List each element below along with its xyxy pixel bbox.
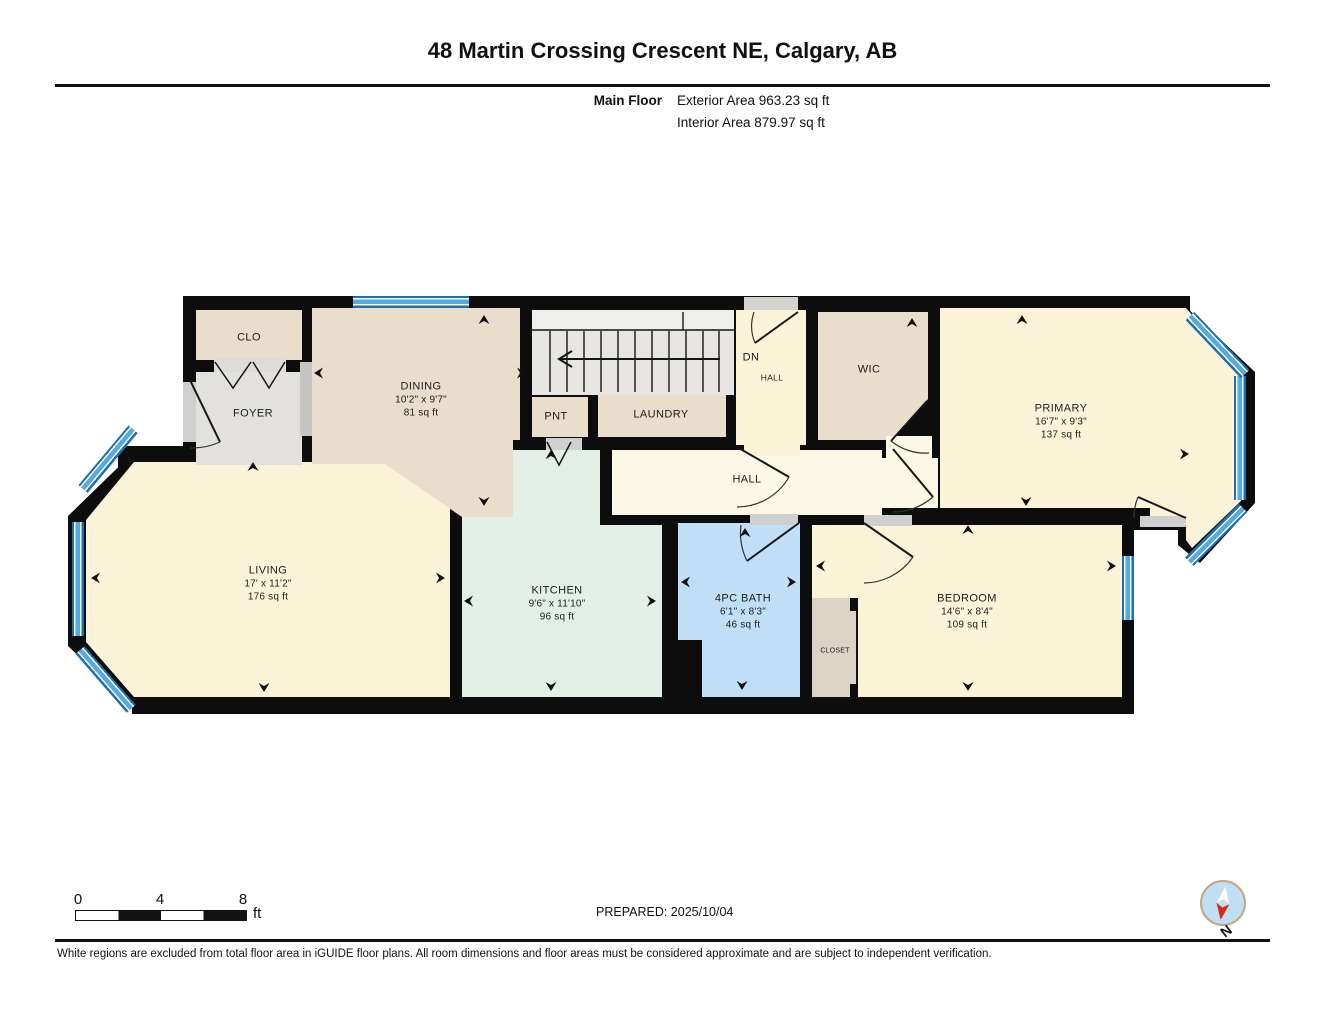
clo-door-sill: [214, 358, 286, 372]
primary-patio-sill: [1140, 516, 1186, 527]
stairs-landing: [532, 310, 734, 330]
pnt-door-sill: [546, 438, 582, 450]
prepared-date: PREPARED: 2025/10/04: [596, 905, 733, 919]
clo-label: CLO: [237, 332, 261, 345]
floor-label: Main Floor: [520, 93, 662, 108]
exterior-area: Exterior Area 963.23 sq ft: [677, 93, 829, 108]
wic-doorway: [886, 436, 932, 460]
living-label: LIVING17' x 11'2"176 sq ft: [244, 565, 291, 604]
bedroom-door-sill: [864, 515, 912, 526]
closet-door-post-bottom: [850, 684, 858, 697]
compass-icon: [1200, 880, 1246, 926]
scale-unit: ft: [253, 905, 261, 922]
foyer-entry-sill: [183, 382, 196, 442]
kitchen-label: KITCHEN9'6" x 11'10"96 sq ft: [529, 585, 586, 624]
foyer-label: FOYER: [233, 408, 273, 421]
hall-label: HALL: [732, 474, 761, 487]
floor-plan-page: { "header": { "title": "48 Martin Crossi…: [0, 0, 1325, 1024]
dn-hall-label: HALL: [761, 372, 783, 385]
primary-label: PRIMARY16'7" x 9'3"137 sq ft: [1035, 403, 1088, 442]
scale-tick-0: 0: [74, 891, 82, 908]
scale-tick-8: 8: [239, 891, 247, 908]
interior-area: Interior Area 879.97 sq ft: [677, 115, 825, 130]
dining-window: [353, 296, 469, 308]
bath-label: 4PC BATH6'1" x 8'3"46 sq ft: [715, 593, 771, 632]
closet-label: CLOSET: [820, 645, 849, 658]
dn-label: DN: [743, 352, 760, 365]
scale-tick-4: 4: [156, 891, 164, 908]
dining-label: DINING10'2" x 9'7"81 sq ft: [395, 381, 447, 420]
wic-label: WIC: [858, 364, 881, 377]
dn-hall-doorway: [744, 440, 800, 456]
header-divider: [55, 84, 1270, 87]
pnt-label: PNT: [544, 411, 567, 424]
scale-bar: [75, 910, 247, 921]
compass-needle: [1199, 879, 1246, 926]
footer-divider: [55, 939, 1270, 942]
bedroom-label: BEDROOM14'6" x 8'4"109 sq ft: [937, 593, 997, 632]
hall-ext-floor: [880, 458, 938, 508]
laundry-label: LAUNDRY: [633, 409, 688, 422]
dn-entry-landing: [744, 297, 798, 310]
living-bay-window-center: [72, 522, 84, 636]
footer-disclaimer: White regions are excluded from total fl…: [57, 948, 1272, 960]
foyer-dining-opening: [300, 362, 312, 436]
closet-door-post-top: [850, 598, 858, 611]
bedroom-window: [1122, 556, 1134, 620]
primary-bay-window-center: [1234, 376, 1246, 500]
page-title: 48 Martin Crossing Crescent NE, Calgary,…: [0, 38, 1325, 64]
bath-door-sill: [750, 514, 798, 525]
